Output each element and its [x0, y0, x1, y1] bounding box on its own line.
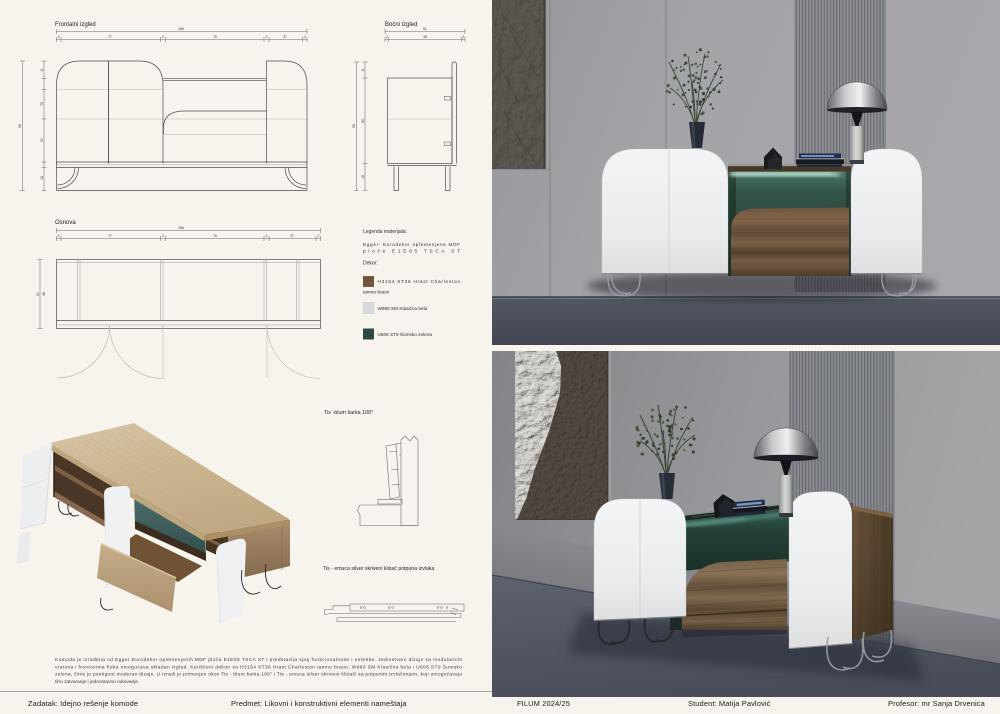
svg-text:51: 51 — [36, 292, 40, 296]
svg-text:2: 2 — [266, 35, 268, 39]
svg-text:2: 2 — [386, 35, 388, 39]
svg-text:18: 18 — [361, 175, 365, 179]
svg-text:2: 2 — [58, 234, 60, 238]
svg-text:76: 76 — [213, 234, 217, 238]
svg-text:37: 37 — [283, 35, 287, 39]
svg-text:Tis - emuca silver skriveni kl: Tis - emuca silver skriveni klizač potpu… — [323, 566, 434, 572]
svg-text:2: 2 — [304, 35, 306, 39]
svg-text:ploče E1E05 TSCA ST: ploče E1E05 TSCA ST — [363, 249, 460, 254]
svg-text:Bočni izgled: Bočni izgled — [385, 22, 417, 28]
svg-text:U606 ST9 Šumsko zelena: U606 ST9 Šumsko zelena — [378, 331, 433, 337]
svg-text:2: 2 — [58, 35, 60, 39]
svg-text:51: 51 — [423, 27, 427, 31]
svg-text:Tis -blum šarka 100°: Tis -blum šarka 100° — [324, 410, 373, 416]
svg-text:85: 85 — [361, 119, 365, 123]
svg-text:Komoda je izrađena od Egger Eu: Komoda je izrađena od Egger Eurodekor op… — [55, 657, 462, 663]
svg-text:2: 2 — [266, 234, 268, 238]
svg-text:77: 77 — [108, 234, 112, 238]
svg-text:76: 76 — [213, 35, 217, 39]
svg-text:Legenda materijala:: Legenda materijala: — [363, 229, 407, 235]
svg-text:W960 SM Klasična bela: W960 SM Klasična bela — [378, 306, 428, 311]
svg-text:166: 166 — [178, 27, 184, 31]
svg-text:96: 96 — [18, 124, 22, 128]
svg-text:166: 166 — [178, 226, 184, 230]
svg-text:37: 37 — [290, 234, 294, 238]
svg-text:48: 48 — [423, 35, 427, 39]
svg-text:tiho zatvaranje i jednostavno: tiho zatvaranje i jednostavno rukovanje. — [55, 679, 139, 685]
svg-text:96: 96 — [352, 124, 356, 128]
svg-text:zelena, čime je postignut mode: zelena, čime je postignut moderan dizajn… — [55, 672, 462, 678]
svg-text:18: 18 — [40, 176, 44, 180]
svg-text:Egger- Eurodekor oplemenjene M: Egger- Eurodekor oplemenjene MDF — [363, 242, 460, 247]
svg-text:2: 2 — [162, 234, 164, 238]
svg-text:75: 75 — [40, 102, 44, 106]
svg-text:30: 30 — [40, 138, 44, 142]
svg-text:Frontalni izgled: Frontalni izgled — [55, 22, 96, 28]
svg-text:11: 11 — [361, 68, 365, 72]
svg-text:48: 48 — [42, 292, 46, 296]
svg-text:vratima i frontovima fioka omo: vratima i frontovima fioka omogućava skl… — [55, 663, 462, 670]
svg-text:2: 2 — [462, 35, 464, 39]
svg-text:H3154 ST36 Hrast Charleston: H3154 ST36 Hrast Charleston — [378, 279, 461, 284]
svg-text:2: 2 — [162, 35, 164, 39]
svg-text:77: 77 — [108, 35, 112, 39]
svg-text:tamno braon: tamno braon — [363, 290, 390, 295]
svg-text:Osnova: Osnova — [55, 220, 76, 226]
svg-text:2: 2 — [318, 234, 320, 238]
svg-text:11: 11 — [40, 68, 44, 72]
svg-text:Dekor:: Dekor: — [363, 261, 378, 267]
